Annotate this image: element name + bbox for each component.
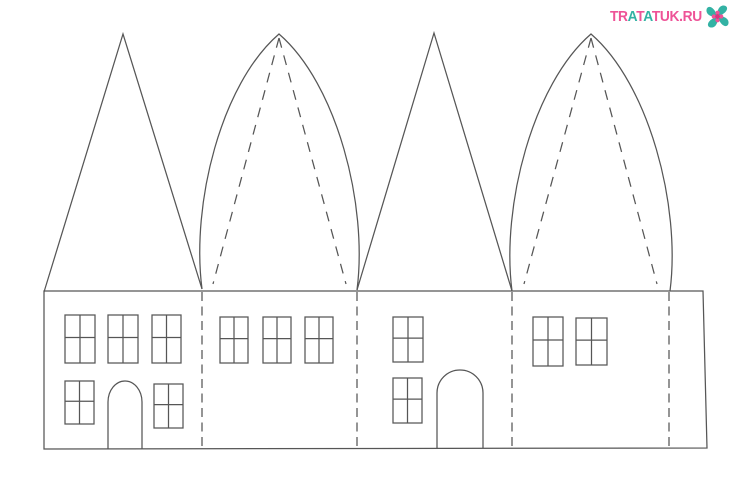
pinwheel-center: [715, 14, 720, 19]
window: [305, 317, 333, 363]
window: [533, 317, 563, 366]
door: [437, 370, 483, 448]
window: [220, 317, 248, 363]
watermark-text: TRATATUK.RU: [610, 8, 702, 25]
watermark: TRATATUK.RU: [602, 3, 731, 30]
roof-dome-2: [200, 34, 359, 290]
craft-template-canvas: TRATATUK.RU: [0, 0, 735, 484]
roof-outline: [200, 34, 359, 290]
watermark-letter: A: [643, 8, 652, 25]
roof-outline: [357, 33, 512, 291]
door: [108, 381, 142, 449]
template-svg: [0, 0, 735, 484]
watermark-letter: U: [660, 8, 670, 25]
house-body-outline: [44, 291, 707, 449]
roof-triangle-1: [44, 34, 202, 292]
window: [393, 317, 423, 362]
roof-outline: [44, 34, 202, 292]
window: [576, 318, 607, 365]
watermark-letter: A: [628, 8, 637, 25]
roof-dome-4: [510, 34, 672, 291]
watermark-letter: T: [610, 8, 618, 25]
watermark-letter: U: [692, 8, 702, 25]
pinwheel-icon: [704, 3, 731, 30]
window: [393, 378, 422, 423]
watermark-letter: R: [618, 8, 628, 25]
window: [65, 381, 94, 424]
window: [263, 317, 291, 363]
window: [65, 315, 95, 363]
window: [154, 384, 183, 428]
watermark-letter: K: [670, 8, 680, 25]
roof-triangle-3: [357, 33, 512, 291]
window: [152, 315, 181, 363]
roof-outline: [510, 34, 672, 291]
window: [108, 315, 138, 363]
